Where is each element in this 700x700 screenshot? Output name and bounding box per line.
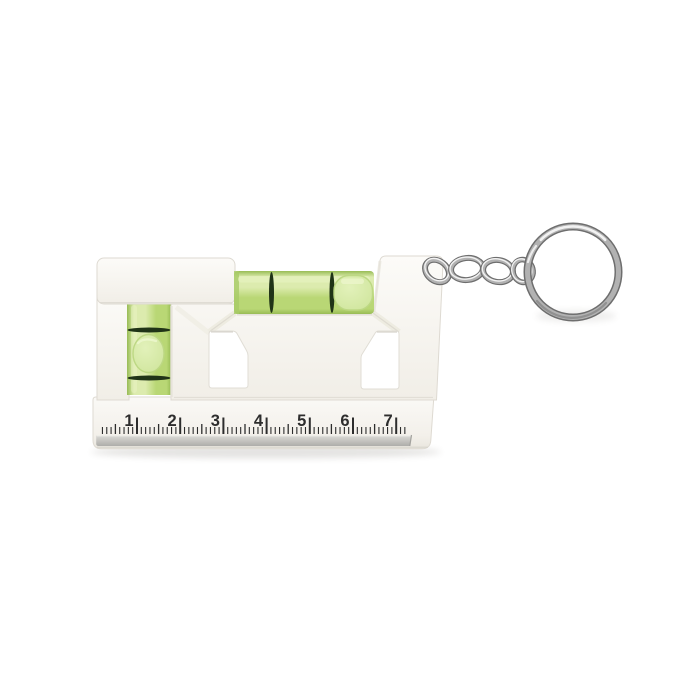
- ruler-number: 4: [254, 412, 264, 430]
- ruler-number: 7: [384, 412, 393, 430]
- ruler-tick: [249, 427, 250, 434]
- horizontal-vial: [234, 271, 374, 314]
- ruler-number: 5: [297, 412, 306, 430]
- chain-link: [480, 256, 515, 284]
- ruler-tick: [318, 427, 319, 434]
- ruler-tick: [357, 427, 358, 434]
- ruler-tick: [201, 424, 202, 434]
- ruler-number: 1: [124, 412, 133, 430]
- chain-link: [449, 255, 484, 281]
- ruler-tick: [400, 427, 401, 434]
- ruler-tick: [227, 427, 228, 434]
- horizontal-vial-ring-left: [269, 272, 274, 313]
- ruler-tick: [395, 418, 397, 435]
- ruler-tick: [111, 427, 112, 434]
- ruler-tick: [206, 427, 207, 434]
- ruler-tick: [184, 427, 185, 434]
- vertical-vial-ring-bottom: [128, 376, 171, 381]
- ruler-tick: [370, 427, 371, 434]
- ruler-tick: [314, 427, 315, 434]
- ruler-tick: [119, 427, 120, 434]
- keychain: [420, 226, 619, 317]
- ruler-tick: [141, 427, 142, 434]
- ruler-tick: [158, 424, 159, 434]
- ruler-tick: [154, 427, 155, 434]
- ruler-number: 3: [211, 412, 220, 430]
- product-photo: 1234567: [0, 0, 700, 700]
- ruler-tick: [404, 427, 405, 434]
- ruler-tick: [102, 427, 103, 434]
- ruler-tick: [106, 427, 107, 434]
- ruler-tick: [288, 424, 289, 434]
- ruler-tick: [244, 424, 245, 434]
- ruler-number: 2: [168, 412, 177, 430]
- ruler-tick: [145, 427, 146, 434]
- ruler-tick: [270, 427, 271, 434]
- top-left-block: [97, 258, 235, 304]
- ruler-tick: [136, 418, 138, 435]
- ruler-tick: [331, 424, 332, 434]
- ruler-tick: [149, 427, 150, 434]
- ruler-tick: [240, 427, 241, 434]
- ruler-tick: [283, 427, 284, 434]
- left-column: [97, 294, 129, 400]
- ruler-number: 6: [340, 412, 349, 430]
- ruler-tick: [179, 418, 181, 435]
- vertical-vial-ring-top: [128, 328, 171, 333]
- ruler-tick: [292, 427, 293, 434]
- ruler-tick: [193, 427, 194, 434]
- metal-strip: [96, 435, 411, 446]
- split-ring: [528, 226, 619, 317]
- ruler-tick: [162, 427, 163, 434]
- ruler-tick: [322, 427, 323, 434]
- ruler-tick: [115, 424, 116, 434]
- ruler-tick: [279, 427, 280, 434]
- ruler-tick: [335, 427, 336, 434]
- ruler-tick: [374, 424, 375, 434]
- ruler-tick: [197, 427, 198, 434]
- ruler-tick: [361, 427, 362, 434]
- ruler-tick: [222, 418, 224, 435]
- ruler-tick: [236, 427, 237, 434]
- spirit-level-keyring-image: 1234567: [0, 0, 700, 700]
- ruler-tick: [352, 418, 354, 435]
- ruler-tick: [327, 427, 328, 434]
- ruler-tick: [309, 418, 311, 435]
- ruler-tick: [275, 427, 276, 434]
- vertical-vial: [127, 303, 171, 395]
- ruler-tick: [231, 427, 232, 434]
- ruler-tick: [365, 427, 366, 434]
- ruler-tick: [378, 427, 379, 434]
- ruler-tick: [188, 427, 189, 434]
- ruler-tick: [266, 418, 268, 435]
